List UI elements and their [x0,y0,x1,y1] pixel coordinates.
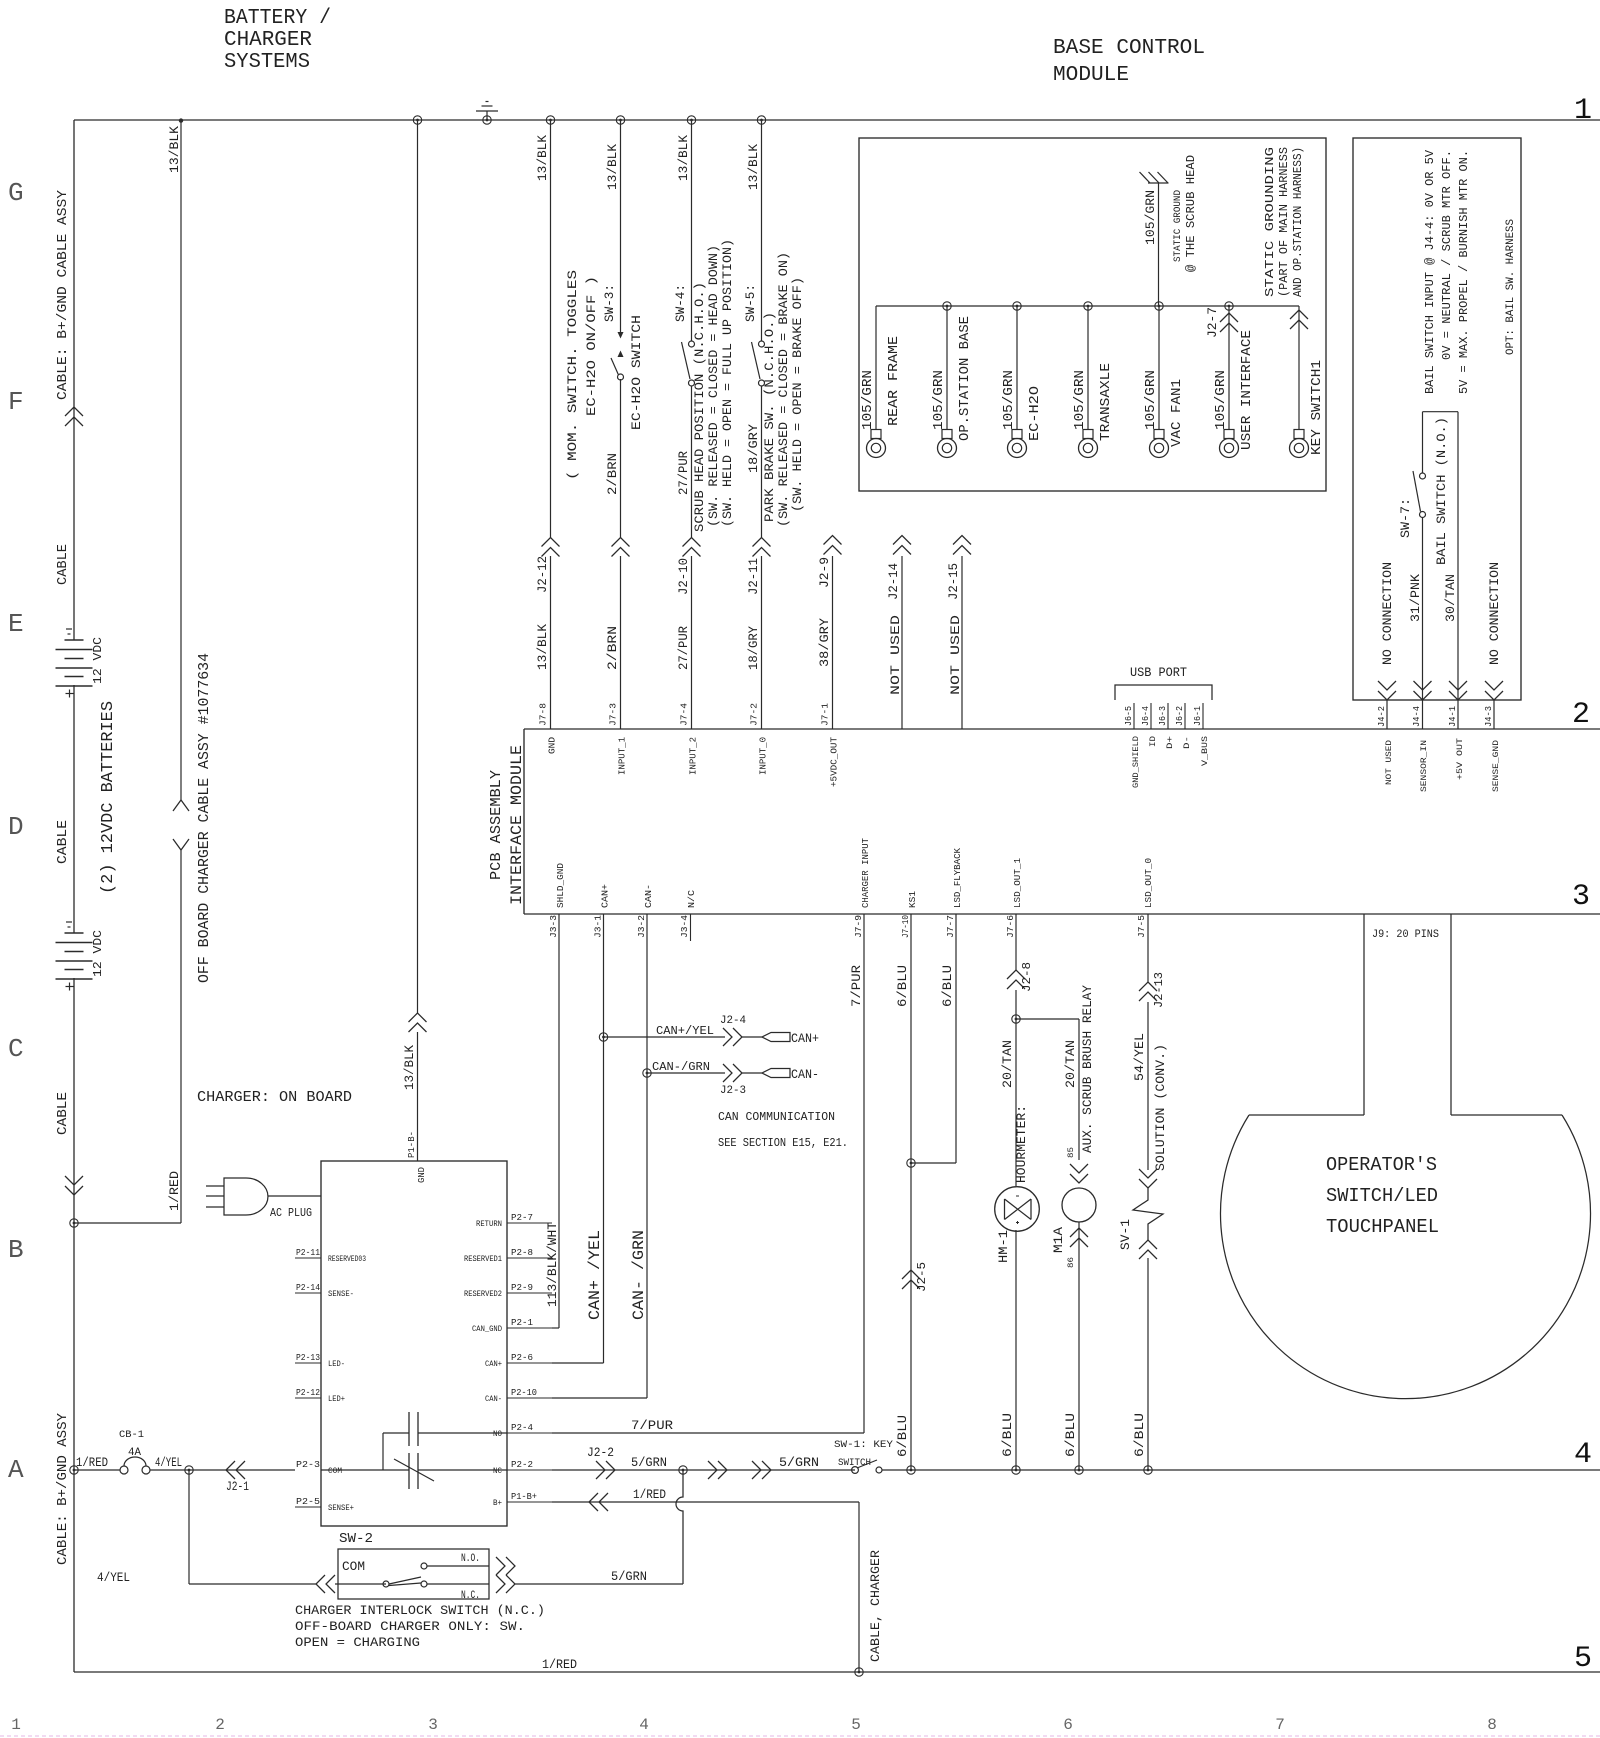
svg-text:D+: D+ [1165,736,1175,749]
svg-text:4: 4 [1574,1438,1592,1472]
svg-text:4/YEL: 4/YEL [155,1455,182,1470]
svg-text:27/PUR: 27/PUR [676,626,691,670]
svg-text:4/YEL: 4/YEL [97,1570,130,1585]
svg-text:D: D [8,812,24,842]
svg-text:C: C [8,1034,24,1064]
svg-text:3: 3 [428,1716,438,1734]
svg-text:54/YEL: 54/YEL [1132,1033,1147,1081]
svg-text:20/TAN: 20/TAN [1000,1040,1015,1088]
svg-text:M1A: M1A [1051,1227,1066,1253]
svg-text:J4-2: J4-2 [1377,706,1387,727]
svg-text:J7-1: J7-1 [820,703,831,726]
svg-text:J7-7: J7-7 [945,915,956,938]
svg-text:CAN+: CAN+ [485,1360,502,1369]
svg-text:6/BLU: 6/BLU [1063,1413,1078,1457]
svg-text:EC-H2O: EC-H2O [1027,386,1043,441]
svg-text:P2-4: P2-4 [511,1423,533,1433]
svg-text:AND OP.STATION HARNESS): AND OP.STATION HARNESS) [1292,147,1305,297]
svg-text:105/GRN: 105/GRN [1072,370,1088,430]
svg-text:VAC FAN1: VAC FAN1 [1169,379,1185,447]
svg-text:J3-4: J3-4 [679,915,690,938]
svg-text:1: 1 [1574,94,1592,128]
svg-text:SYSTEMS: SYSTEMS [224,51,310,74]
svg-text:85: 85 [1067,1147,1076,1158]
svg-text:12 VDC: 12 VDC [92,930,105,977]
svg-text:8: 8 [1487,1716,1497,1734]
svg-text:OP.STATION BASE: OP.STATION BASE [957,316,973,441]
svg-text:18/GRY: 18/GRY [746,626,761,670]
svg-text:(2) 12VDC BATTERIES: (2) 12VDC BATTERIES [98,701,117,894]
svg-text:STATIC GROUND: STATIC GROUND [1172,190,1184,262]
svg-text:+5VDC_OUT: +5VDC_OUT [830,736,840,787]
svg-text:13/BLK: 13/BLK [402,1045,417,1090]
svg-text:SHLD_GND: SHLD_GND [556,863,566,908]
svg-text:AUX. SCRUB BRUSH RELAY: AUX. SCRUB BRUSH RELAY [1081,984,1095,1153]
svg-text:@ THE SCRUB HEAD: @ THE SCRUB HEAD [1184,155,1198,272]
svg-text:7: 7 [1275,1716,1285,1734]
svg-text:GND: GND [417,1167,427,1183]
svg-text:OPEN = CHARGING: OPEN = CHARGING [295,1635,420,1650]
svg-text:(SW. RELEASED = CLOSED = BRAKE: (SW. RELEASED = CLOSED = BRAKE ON) [776,252,791,527]
svg-text:P1-B+: P1-B+ [511,1492,537,1502]
svg-text:E: E [8,609,24,639]
svg-text:BASE CONTROL: BASE CONTROL [1053,37,1205,60]
svg-text:5/GRN: 5/GRN [611,1569,647,1584]
svg-text:RETURN: RETURN [476,1220,502,1229]
svg-text:CAN COMMUNICATION: CAN COMMUNICATION [718,1111,835,1124]
svg-text:B: B [8,1235,24,1265]
svg-text:CABLE: CABLE [56,820,71,864]
svg-text:SW-4:: SW-4: [673,284,688,322]
svg-text:20/TAN: 20/TAN [1063,1040,1078,1088]
svg-text:SWITCH: SWITCH [838,1458,871,1469]
svg-text:4A: 4A [128,1447,141,1459]
svg-text:J7-10: J7-10 [900,915,911,938]
svg-text:1/RED: 1/RED [542,1657,577,1672]
svg-text:SOLUTION (CONV.): SOLUTION (CONV.) [1153,1044,1168,1171]
svg-text:7/PUR: 7/PUR [849,965,864,1007]
svg-text:USB PORT: USB PORT [1130,666,1187,680]
svg-text:J7-4: J7-4 [679,703,690,726]
svg-text:NO CONNECTION: NO CONNECTION [1380,562,1395,665]
svg-text:NOT USED: NOT USED [1384,740,1394,785]
svg-text:NC: NC [493,1467,502,1476]
svg-text:TRANSAXLE: TRANSAXLE [1098,363,1114,441]
svg-text:1/RED: 1/RED [167,1171,182,1211]
svg-text:PCB ASSEMBLY: PCB ASSEMBLY [488,770,505,880]
svg-text:J7-6: J7-6 [1005,915,1016,938]
svg-text:(SW. HELD = OPEN = BRAKE OFF): (SW. HELD = OPEN = BRAKE OFF) [790,277,805,512]
svg-text:F: F [8,387,24,417]
svg-text:J7-2: J7-2 [749,703,760,726]
svg-text:(SW. HELD = OPEN = FULL UP POS: (SW. HELD = OPEN = FULL UP POSITION) [720,239,735,527]
svg-text:J2-12: J2-12 [536,556,550,593]
svg-text:4: 4 [639,1716,649,1734]
svg-text:P2-9: P2-9 [511,1283,533,1293]
svg-text:1/RED: 1/RED [76,1455,108,1470]
svg-text:13/BLK: 13/BLK [167,126,182,173]
svg-text:J6-1: J6-1 [1193,706,1203,726]
svg-text:ID: ID [1148,736,1158,747]
svg-text:EC-H2O ON/OFF ): EC-H2O ON/OFF ) [584,276,599,416]
svg-text:CABLE: CABLE [56,1092,71,1135]
svg-text:EC-H2O SWITCH: EC-H2O SWITCH [629,315,644,430]
svg-text:5: 5 [851,1716,861,1734]
svg-text:P2-7: P2-7 [511,1213,533,1223]
svg-text:CABLE: B+/GND ASSY: CABLE: B+/GND ASSY [55,1412,71,1565]
svg-text:13/BLK: 13/BLK [746,144,761,190]
svg-text:INPUT_1: INPUT_1 [618,737,628,775]
svg-text:2/BRN: 2/BRN [605,453,620,495]
svg-text:P1-B-: P1-B- [406,1131,417,1158]
svg-text:BAIL SWITCH (N.O.): BAIL SWITCH (N.O.) [1434,417,1449,565]
svg-text:J6-3: J6-3 [1158,706,1168,726]
svg-text:J4-1: J4-1 [1448,706,1458,727]
svg-text:B+: B+ [493,1499,502,1508]
svg-text:105/GRN: 105/GRN [1213,370,1229,430]
svg-text:J2-7: J2-7 [1206,307,1220,338]
svg-text:SV-1: SV-1 [1118,1219,1133,1250]
svg-text:SW-5:: SW-5: [743,284,758,322]
svg-text:J4-3: J4-3 [1484,706,1494,727]
svg-text:N.O.: N.O. [461,1553,480,1565]
svg-text:CAN-: CAN- [791,1068,819,1082]
svg-text:OPT: BAIL SW. HARNESS: OPT: BAIL SW. HARNESS [1505,219,1517,355]
svg-text:CABLE: CABLE [56,544,71,585]
svg-text:13/BLK: 13/BLK [605,144,620,190]
svg-text:NO CONNECTION: NO CONNECTION [1487,562,1502,665]
svg-text:5/GRN: 5/GRN [631,1455,667,1470]
svg-text:18/GRY: 18/GRY [746,424,761,473]
svg-text:1: 1 [11,1716,21,1734]
svg-text:105/GRN: 105/GRN [1001,370,1017,430]
svg-text:J2-5: J2-5 [916,1262,929,1292]
svg-text:1/RED: 1/RED [633,1487,666,1502]
svg-text:SW-3:: SW-3: [602,284,617,322]
svg-text:J2-2: J2-2 [587,1445,614,1460]
svg-text:P2-13: P2-13 [296,1353,320,1363]
svg-text:6/BLU: 6/BLU [895,965,910,1007]
svg-text:COM: COM [342,1559,365,1574]
svg-text:CHARGER: CHARGER [224,29,312,52]
svg-text:(SW. RELEASED = CLOSED = HEAD: (SW. RELEASED = CLOSED = HEAD DOWN) [706,245,721,527]
svg-text:CAN-/GRN: CAN-/GRN [652,1060,710,1074]
svg-text:INTERFACE MODULE: INTERFACE MODULE [508,745,526,905]
svg-text:RESERVED03: RESERVED03 [328,1255,366,1264]
svg-text:(PART OF MAIN HARNESS: (PART OF MAIN HARNESS [1278,147,1291,297]
svg-text:J2-13: J2-13 [1153,972,1166,1008]
svg-text:86: 86 [1067,1257,1076,1268]
svg-text:6/BLU: 6/BLU [1000,1413,1015,1457]
svg-text:J6-2: J6-2 [1175,706,1185,726]
svg-text:NOT USED: NOT USED [888,615,903,695]
svg-text:27/PUR: 27/PUR [676,451,691,495]
svg-text:J2-9: J2-9 [818,557,832,588]
svg-text:J7-8: J7-8 [538,703,549,726]
svg-text:REAR FRAME: REAR FRAME [886,336,902,426]
svg-text:NO: NO [493,1430,502,1439]
svg-text:6/BLU: 6/BLU [895,1415,910,1457]
svg-text:CHARGER: ON BOARD: CHARGER: ON BOARD [197,1089,352,1106]
svg-text:105/GRN: 105/GRN [931,370,947,430]
svg-text:30/TAN: 30/TAN [1443,574,1458,622]
svg-text:BAIL SWITCH INPUT @ J4-4: 0V O: BAIL SWITCH INPUT @ J4-4: 0V OR 5V [1423,149,1437,394]
svg-text:SENSE+: SENSE+ [328,1504,354,1513]
svg-text:N.C.: N.C. [461,1590,480,1602]
svg-text:CAN+: CAN+ [601,884,611,908]
svg-text:J2-11: J2-11 [747,558,761,595]
svg-text:INPUT_2: INPUT_2 [689,737,699,775]
svg-text:SENSOR_IN: SENSOR_IN [1419,740,1429,792]
svg-text:J7-9: J7-9 [853,915,864,938]
svg-text:KS1: KS1 [908,891,918,908]
svg-text:RESERVED1: RESERVED1 [464,1255,502,1264]
svg-text:12 VDC: 12 VDC [92,637,105,684]
svg-text:SWITCH/LED: SWITCH/LED [1326,1185,1438,1207]
svg-text:J3-1: J3-1 [593,915,604,938]
svg-text:LSD_OUT_0: LSD_OUT_0 [1144,858,1154,908]
svg-text:V_BUS: V_BUS [1200,736,1210,766]
svg-text:GND_SHIELD: GND_SHIELD [1131,736,1141,788]
svg-text:6: 6 [1063,1716,1073,1734]
svg-text:6/BLU: 6/BLU [940,965,955,1007]
svg-text:105/GRN: 105/GRN [1143,370,1159,430]
svg-text:P2-1: P2-1 [511,1318,533,1328]
svg-text:5/GRN: 5/GRN [779,1455,819,1470]
svg-text:113/BLK/WHT: 113/BLK/WHT [545,1222,560,1307]
svg-text:105/GRN: 105/GRN [860,370,876,430]
svg-text:J2-8: J2-8 [1021,962,1034,992]
svg-text:BATTERY /: BATTERY / [224,7,331,30]
svg-text:J2-10: J2-10 [677,558,691,595]
svg-text:J6-5: J6-5 [1124,706,1134,726]
svg-text:J2-14: J2-14 [887,563,901,600]
svg-text:COM: COM [328,1467,342,1476]
svg-text:P2-14: P2-14 [296,1283,320,1293]
svg-text:SCRUB HEAD POSITION (N.C.H.O.): SCRUB HEAD POSITION (N.C.H.O.) [692,282,707,532]
svg-text:J3-2: J3-2 [636,915,647,938]
svg-text:STATIC GROUNDING: STATIC GROUNDING [1264,147,1277,297]
svg-text:38/GRY: 38/GRY [817,618,832,667]
svg-text:INPUT_0: INPUT_0 [759,737,769,775]
svg-text:CHARGER INPUT: CHARGER INPUT [861,837,871,908]
svg-text:A: A [8,1455,24,1485]
svg-text:31/PNK: 31/PNK [1408,574,1423,622]
svg-text:GND: GND [548,737,558,754]
svg-text:P2-2: P2-2 [511,1460,533,1470]
svg-text:2/BRN: 2/BRN [605,626,620,670]
svg-text:P2-8: P2-8 [511,1248,533,1258]
svg-text:CAN-: CAN- [485,1395,502,1404]
svg-text:OPERATOR'S: OPERATOR'S [1326,1154,1437,1176]
svg-text:AC PLUG: AC PLUG [270,1206,312,1220]
svg-text:CAN+/YEL: CAN+/YEL [656,1024,714,1038]
svg-text:105/GRN: 105/GRN [1144,190,1158,245]
svg-text:OFF-BOARD CHARGER ONLY: SW.: OFF-BOARD CHARGER ONLY: SW. [295,1619,525,1634]
svg-text:J2-3: J2-3 [720,1085,746,1097]
svg-text:SEE SECTION E15, E21.: SEE SECTION E15, E21. [718,1137,848,1150]
svg-text:CABLE, CHARGER: CABLE, CHARGER [868,1550,883,1662]
svg-text:J7-3: J7-3 [608,703,619,726]
svg-text:LSD_OUT_1: LSD_OUT_1 [1013,858,1023,908]
svg-text:13/BLK: 13/BLK [535,135,550,181]
svg-text:13/BLK: 13/BLK [676,135,691,181]
svg-text:J7-5: J7-5 [1136,915,1147,938]
svg-text:J2-1: J2-1 [226,1479,249,1494]
svg-text:USER INTERFACE: USER INTERFACE [1239,330,1255,450]
svg-text:P2-5: P2-5 [296,1497,320,1507]
svg-text:CABLE: B+/GND CABLE ASSY: CABLE: B+/GND CABLE ASSY [55,189,71,400]
svg-text:KEY SWITCH1: KEY SWITCH1 [1309,360,1325,455]
svg-text:CB-1: CB-1 [119,1429,144,1441]
svg-text:CAN_GND: CAN_GND [472,1325,502,1334]
svg-text:P2-10: P2-10 [511,1388,537,1398]
svg-text:P2-3: P2-3 [296,1460,320,1470]
svg-text:SW-7:: SW-7: [1398,498,1413,538]
svg-text:6/BLU: 6/BLU [1132,1413,1147,1457]
svg-text:HOURMETER:: HOURMETER: [1014,1105,1029,1183]
svg-text:SW-2: SW-2 [339,1531,373,1547]
svg-text:+5V OUT: +5V OUT [1455,738,1465,780]
svg-text:J6-4: J6-4 [1141,706,1151,726]
svg-text:SENSE_GND: SENSE_GND [1491,740,1501,792]
svg-text:HM-1: HM-1 [996,1230,1011,1263]
svg-text:CAN+ /YEL: CAN+ /YEL [586,1230,604,1320]
svg-text:J3-3: J3-3 [548,915,559,938]
svg-text:LED+: LED+ [328,1395,345,1404]
svg-text:13/BLK: 13/BLK [535,624,550,670]
svg-text:N/C: N/C [687,889,697,908]
svg-text:TOUCHPANEL: TOUCHPANEL [1326,1216,1439,1238]
svg-text:J2-15: J2-15 [947,563,961,600]
svg-text:P2-6: P2-6 [511,1353,533,1363]
svg-text:J4-4: J4-4 [1412,706,1422,727]
svg-text:OFF BOARD CHARGER CABLE ASSY #: OFF BOARD CHARGER CABLE ASSY #1077634 [197,653,213,983]
svg-text:5V = MAX. PROPEL / BURNISH MTR: 5V = MAX. PROPEL / BURNISH MTR ON. [1457,150,1471,394]
svg-text:CAN- /GRN: CAN- /GRN [630,1230,648,1320]
svg-text:RESERVED2: RESERVED2 [464,1290,502,1299]
svg-text:5: 5 [1574,1642,1592,1676]
svg-text:CHARGER INTERLOCK SWITCH (N.C.: CHARGER INTERLOCK SWITCH (N.C.) [295,1603,545,1618]
svg-text:J2-4: J2-4 [720,1015,746,1027]
svg-text:PARK BRAKE SW. (N.C.H.O.): PARK BRAKE SW. (N.C.H.O.) [762,312,777,522]
svg-text:J9: 20 PINS: J9: 20 PINS [1372,929,1439,941]
svg-text:P2-11: P2-11 [296,1248,320,1258]
svg-text:SENSE-: SENSE- [328,1290,354,1299]
svg-text:7/PUR: 7/PUR [631,1418,673,1433]
svg-text:P2-12: P2-12 [296,1388,320,1398]
svg-text:0V = NEUTRAL / SCRUB MTR OFF.: 0V = NEUTRAL / SCRUB MTR OFF. [1440,150,1454,360]
svg-text:NOT USED: NOT USED [948,615,963,695]
svg-text:MODULE: MODULE [1053,64,1129,87]
svg-text:CAN-: CAN- [644,884,654,908]
svg-text:LED-: LED- [328,1360,345,1369]
svg-text:LSD_FLYBACK: LSD_FLYBACK [953,847,963,908]
svg-text:3: 3 [1572,880,1590,914]
svg-text:CAN+: CAN+ [791,1032,819,1046]
svg-text:D-: D- [1182,736,1192,749]
svg-text:2: 2 [215,1716,225,1734]
svg-text:G: G [8,178,24,208]
svg-text:SW-1: KEY: SW-1: KEY [834,1439,894,1451]
svg-text:( MOM. SWITCH. TOGGLES: ( MOM. SWITCH. TOGGLES [565,270,580,480]
svg-text:2: 2 [1572,698,1590,732]
